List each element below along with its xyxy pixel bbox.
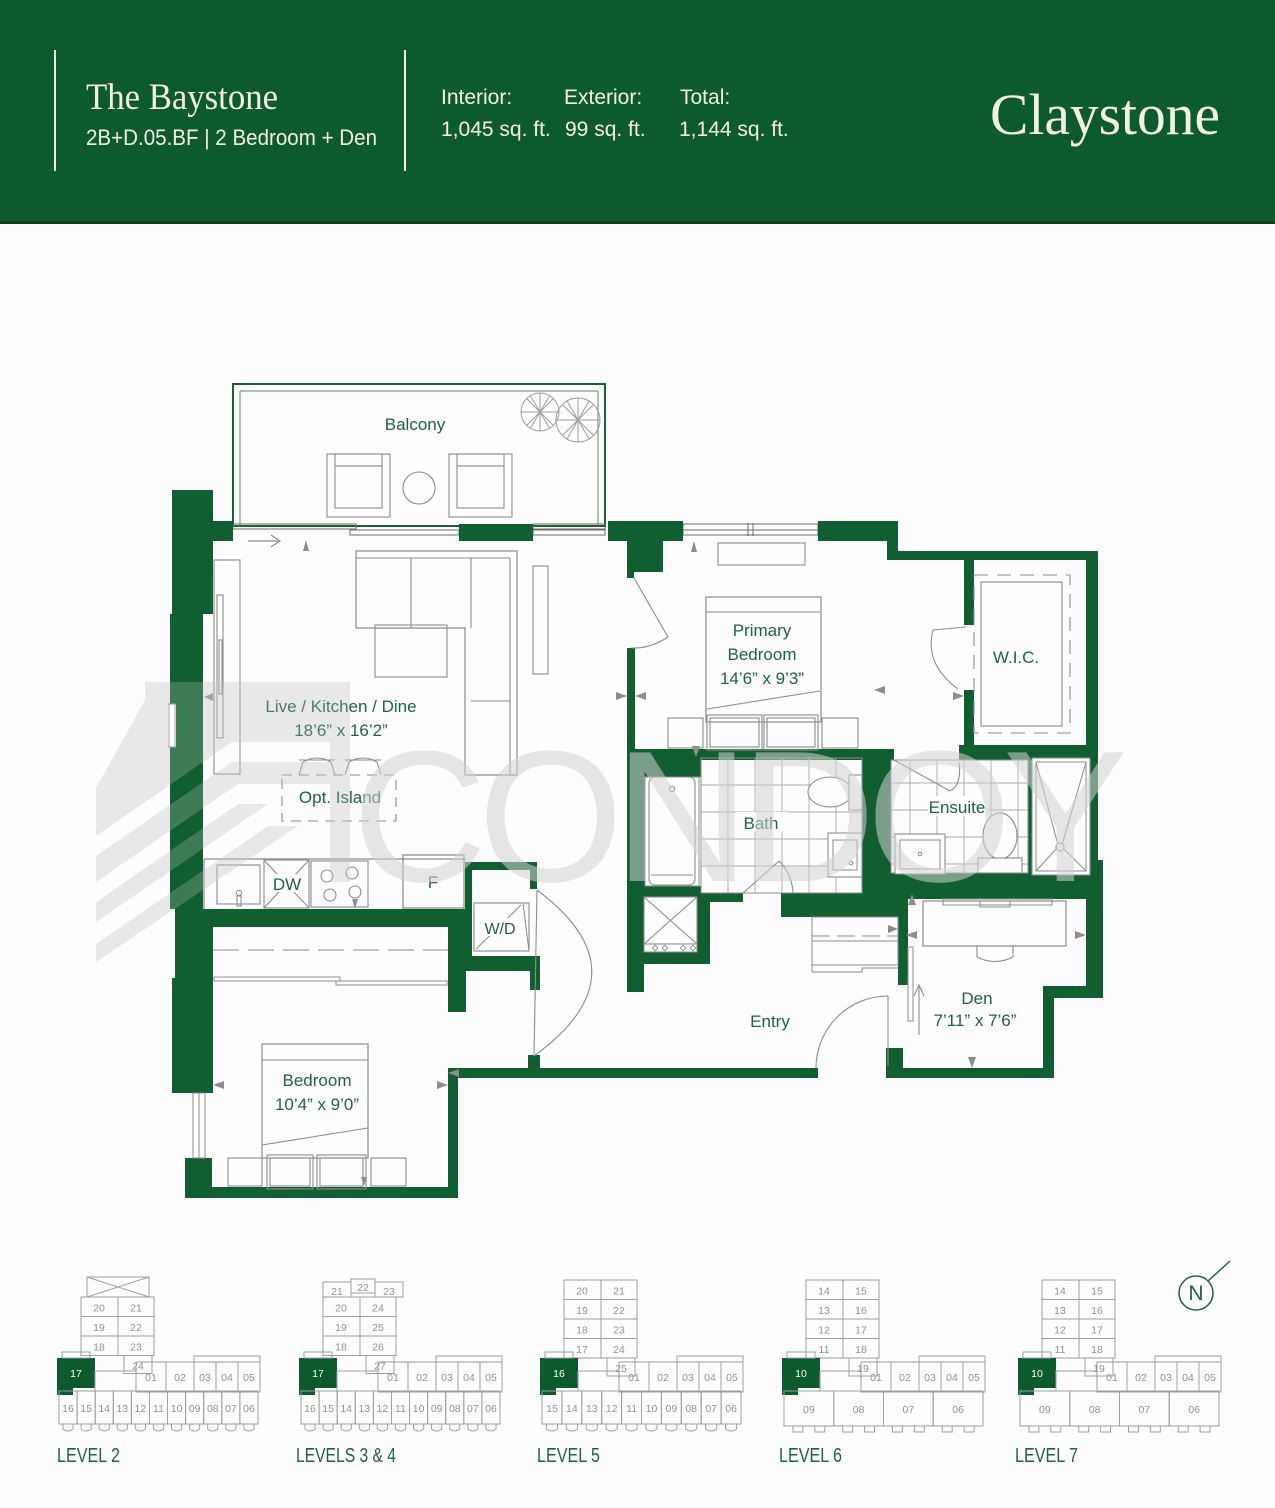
svg-text:19: 19 [576,1305,588,1317]
svg-text:13: 13 [586,1403,598,1415]
svg-text:13: 13 [1054,1305,1066,1317]
svg-text:W/D: W/D [484,921,515,938]
svg-text:24: 24 [372,1303,384,1315]
svg-text:10: 10 [795,1368,807,1380]
svg-text:02: 02 [174,1372,186,1384]
svg-text:18: 18 [1091,1344,1103,1356]
svg-text:Primary: Primary [733,621,792,640]
svg-text:17: 17 [576,1344,588,1356]
svg-text:17: 17 [312,1368,324,1380]
svg-text:06: 06 [1188,1404,1200,1416]
svg-text:03: 03 [1160,1372,1172,1384]
svg-text:19: 19 [1093,1363,1105,1375]
svg-text:Bedroom: Bedroom [283,1071,352,1090]
svg-text:Balcony: Balcony [385,415,446,434]
svg-text:13: 13 [818,1305,830,1317]
svg-text:7’11” x 7’6”: 7’11” x 7’6” [934,1011,1017,1030]
svg-text:01: 01 [145,1372,157,1384]
svg-text:LEVEL 6: LEVEL 6 [779,1445,842,1467]
svg-text:15: 15 [546,1403,558,1415]
svg-text:05: 05 [968,1372,980,1384]
svg-text:14: 14 [566,1403,578,1415]
svg-text:06: 06 [725,1403,737,1415]
svg-text:07: 07 [705,1403,717,1415]
svg-text:03: 03 [441,1372,453,1384]
svg-text:LEVEL 5: LEVEL 5 [537,1445,600,1467]
svg-text:16: 16 [855,1305,867,1317]
svg-text:Bedroom: Bedroom [728,645,797,664]
svg-text:03: 03 [682,1372,694,1384]
svg-text:Total:: Total: [680,86,730,109]
svg-text:Den: Den [961,989,992,1008]
svg-text:08: 08 [853,1404,865,1416]
svg-text:05: 05 [485,1372,497,1384]
svg-text:12: 12 [818,1325,830,1337]
svg-text:20: 20 [93,1303,105,1315]
svg-text:14: 14 [1054,1286,1066,1298]
svg-text:04: 04 [1182,1372,1194,1384]
svg-text:07: 07 [467,1403,479,1415]
svg-text:11: 11 [153,1403,164,1415]
svg-text:17: 17 [855,1325,867,1337]
svg-text:19: 19 [335,1322,347,1334]
svg-text:03: 03 [924,1372,936,1384]
svg-text:18: 18 [93,1342,105,1354]
svg-text:07: 07 [903,1404,915,1416]
svg-text:23: 23 [383,1286,395,1298]
svg-text:99 sq. ft.: 99 sq. ft. [565,118,646,141]
svg-text:23: 23 [613,1325,625,1337]
svg-text:01: 01 [870,1372,882,1384]
svg-text:LEVEL 2: LEVEL 2 [57,1445,120,1467]
svg-text:22: 22 [130,1322,142,1334]
svg-text:16: 16 [553,1368,565,1380]
svg-text:11: 11 [626,1403,637,1415]
svg-text:12: 12 [135,1403,147,1415]
svg-text:05: 05 [1204,1372,1216,1384]
svg-text:02: 02 [899,1372,911,1384]
svg-text:09: 09 [803,1404,815,1416]
svg-text:20: 20 [576,1286,588,1298]
svg-text:09: 09 [1039,1404,1051,1416]
svg-text:14: 14 [340,1403,352,1415]
svg-text:03: 03 [199,1372,211,1384]
svg-text:LEVELS 3 & 4: LEVELS 3 & 4 [296,1445,396,1467]
svg-text:04: 04 [221,1372,233,1384]
svg-text:24: 24 [613,1344,625,1356]
svg-text:02: 02 [657,1372,669,1384]
svg-text:Claystone: Claystone [990,82,1220,147]
svg-text:12: 12 [377,1403,389,1415]
svg-text:11: 11 [1055,1344,1066,1356]
svg-text:10’4” x 9’0”: 10’4” x 9’0” [275,1095,359,1114]
svg-text:CONDOY: CONDOY [352,712,1124,921]
svg-text:04: 04 [463,1372,475,1384]
svg-text:09: 09 [431,1403,443,1415]
svg-text:09: 09 [189,1403,201,1415]
svg-text:16: 16 [1091,1305,1103,1317]
svg-text:16: 16 [62,1403,74,1415]
svg-text:15: 15 [855,1286,867,1298]
svg-text:12: 12 [606,1403,618,1415]
svg-text:19: 19 [93,1322,105,1334]
svg-text:14: 14 [98,1403,110,1415]
svg-text:Interior:: Interior: [441,86,512,109]
svg-text:10: 10 [1031,1368,1043,1380]
svg-text:12: 12 [1054,1325,1066,1337]
svg-text:07: 07 [225,1403,237,1415]
svg-text:15: 15 [80,1403,92,1415]
svg-text:11: 11 [395,1403,406,1415]
svg-text:18: 18 [855,1344,867,1356]
svg-text:06: 06 [952,1404,964,1416]
svg-text:02: 02 [416,1372,428,1384]
svg-text:04: 04 [946,1372,958,1384]
svg-text:08: 08 [1089,1404,1101,1416]
svg-text:10: 10 [171,1403,183,1415]
svg-text:01: 01 [628,1372,640,1384]
svg-text:20: 20 [335,1303,347,1315]
svg-text:01: 01 [1106,1372,1118,1384]
svg-text:19: 19 [857,1363,869,1375]
svg-text:17: 17 [1091,1325,1103,1337]
svg-text:LEVEL 7: LEVEL 7 [1015,1445,1078,1467]
svg-text:02: 02 [1135,1372,1147,1384]
svg-text:14’6” x 9’3”: 14’6” x 9’3” [720,669,804,688]
svg-text:25: 25 [615,1363,627,1375]
svg-text:21: 21 [331,1286,343,1298]
svg-text:08: 08 [685,1403,697,1415]
svg-text:04: 04 [704,1372,716,1384]
svg-text:10: 10 [413,1403,425,1415]
svg-text:21: 21 [613,1286,625,1298]
svg-text:10: 10 [646,1403,658,1415]
svg-text:07: 07 [1139,1404,1151,1416]
svg-text:Entry: Entry [750,1012,790,1031]
svg-text:06: 06 [485,1403,497,1415]
svg-text:23: 23 [130,1342,142,1354]
svg-text:08: 08 [449,1403,461,1415]
svg-text:21: 21 [130,1303,142,1315]
svg-text:26: 26 [372,1342,384,1354]
svg-text:16: 16 [304,1403,316,1415]
svg-text:DW: DW [273,875,301,894]
svg-text:15: 15 [322,1403,334,1415]
svg-text:22: 22 [613,1305,625,1317]
svg-text:1,045 sq. ft.: 1,045 sq. ft. [441,118,551,141]
svg-text:17: 17 [70,1368,82,1380]
svg-text:13: 13 [116,1403,128,1415]
svg-text:01: 01 [387,1372,399,1384]
svg-text:05: 05 [243,1372,255,1384]
svg-text:13: 13 [358,1403,370,1415]
svg-text:2B+D.05.BF | 2 Bedroom + Den: 2B+D.05.BF | 2 Bedroom + Den [86,125,377,150]
svg-text:09: 09 [666,1403,678,1415]
svg-text:1,144 sq. ft.: 1,144 sq. ft. [679,118,789,141]
svg-text:18: 18 [576,1325,588,1337]
svg-text:W.I.C.: W.I.C. [993,648,1039,667]
svg-text:06: 06 [243,1403,255,1415]
svg-text:22: 22 [357,1282,369,1294]
svg-text:Exterior:: Exterior: [564,86,642,109]
svg-text:25: 25 [372,1322,384,1334]
svg-text:The Baystone: The Baystone [86,77,278,118]
svg-text:05: 05 [726,1372,738,1384]
svg-text:15: 15 [1091,1286,1103,1298]
svg-text:08: 08 [207,1403,219,1415]
svg-text:11: 11 [819,1344,830,1356]
svg-text:18: 18 [335,1342,347,1354]
svg-text:14: 14 [818,1286,830,1298]
svg-text:N: N [1188,1282,1203,1305]
